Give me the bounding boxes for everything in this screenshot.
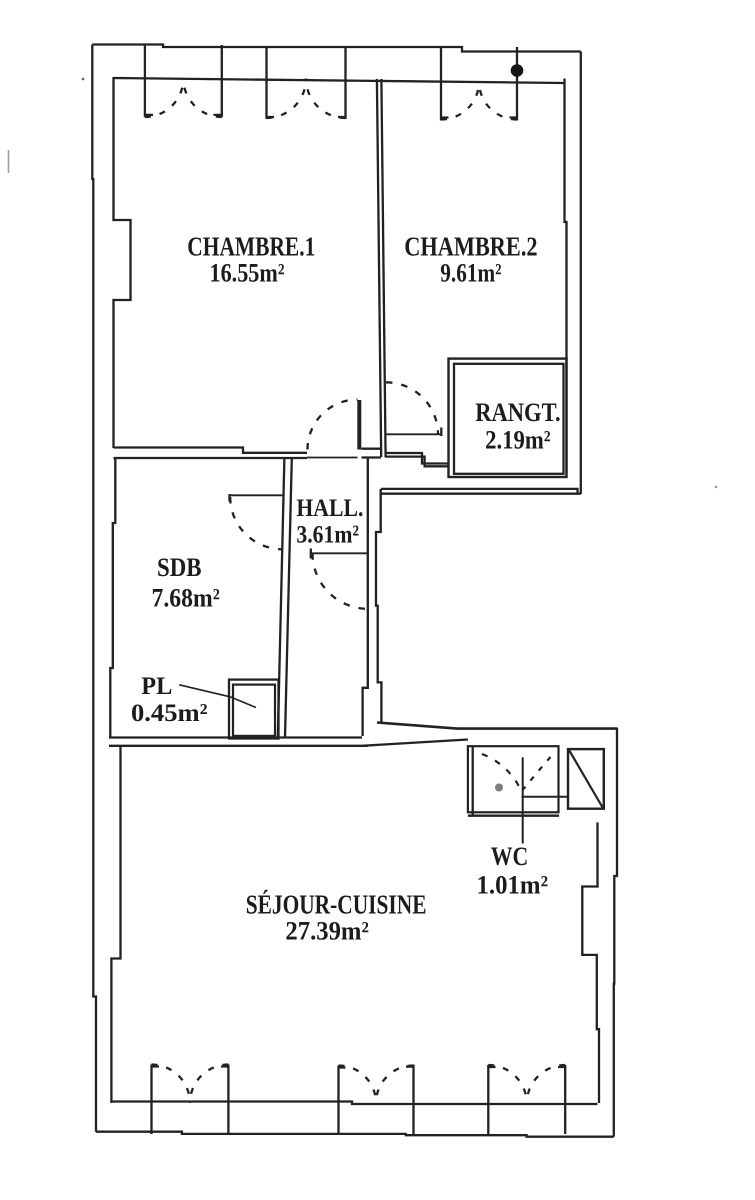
svg-text:7.68m²: 7.68m² [152, 584, 220, 613]
svg-text:1.01m²: 1.01m² [477, 871, 549, 900]
svg-text:CHAMBRE.1: CHAMBRE.1 [187, 232, 315, 262]
svg-text:27.39m²: 27.39m² [285, 917, 369, 946]
svg-text:9.61m²: 9.61m² [440, 259, 501, 288]
svg-text:PL: PL [141, 673, 172, 700]
svg-text:0.45m²: 0.45m² [131, 700, 208, 727]
svg-text:3.61m²: 3.61m² [296, 522, 359, 549]
svg-text:HALL.: HALL. [296, 495, 363, 522]
svg-text:CHAMBRE.2: CHAMBRE.2 [404, 232, 537, 262]
svg-text:SÉJOUR-CUISINE: SÉJOUR-CUISINE [246, 889, 427, 920]
svg-text:SDB: SDB [157, 553, 202, 582]
svg-text:RANGT.: RANGT. [475, 398, 560, 427]
svg-text:WC: WC [491, 842, 529, 871]
svg-text:2.19m²: 2.19m² [485, 426, 551, 455]
svg-text:16.55m²: 16.55m² [210, 259, 285, 288]
